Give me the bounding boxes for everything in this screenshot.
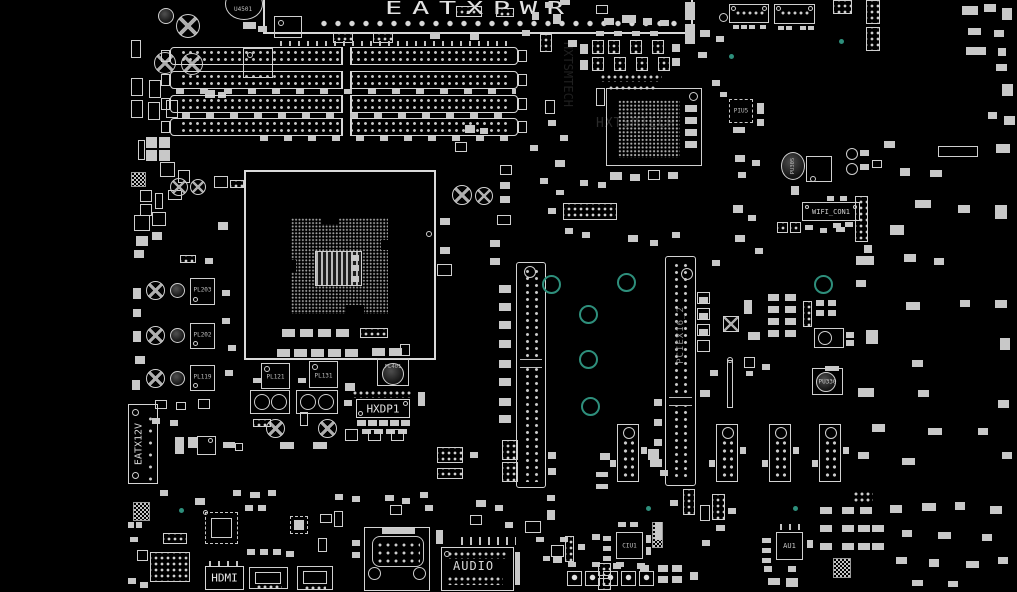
smd-component — [149, 80, 161, 98]
smd-pad — [768, 306, 779, 313]
smd-pad — [930, 170, 942, 177]
smd-component — [470, 515, 482, 525]
smd-component — [137, 550, 148, 561]
smd-component — [274, 16, 302, 38]
smd-pad — [702, 540, 710, 546]
smd-pad — [622, 15, 636, 23]
smd-pad — [603, 546, 611, 551]
electrolytic-capacitor — [190, 179, 206, 195]
smd-pad — [808, 26, 814, 30]
smd-pad — [136, 236, 148, 246]
smd-pad — [352, 540, 360, 546]
smd-pad — [955, 502, 965, 510]
smd-component — [455, 142, 467, 152]
usb-header-2[interactable] — [716, 424, 738, 482]
choke-pl121[interactable]: PL121 — [261, 363, 290, 389]
smd-pad — [556, 190, 564, 195]
dimm-slot-1[interactable] — [170, 47, 518, 65]
via-ring — [524, 266, 536, 278]
pin-header — [790, 222, 801, 233]
smd-pad — [800, 26, 806, 30]
choke-pl119[interactable]: PL119 — [190, 365, 215, 391]
smd-pad — [785, 330, 796, 337]
smd-component — [500, 165, 512, 175]
via-ring — [312, 364, 318, 370]
pcie-slot-2-label: PCIEX16_2 — [676, 306, 686, 364]
via-ring — [254, 394, 270, 410]
smd-pad — [749, 25, 755, 29]
smd-pad — [548, 208, 556, 214]
smd-component — [303, 571, 327, 584]
smd-pad — [159, 150, 170, 161]
smd-pad — [654, 399, 662, 406]
smd-pad — [311, 349, 324, 357]
smd-component — [700, 505, 710, 521]
smd-pad — [604, 18, 614, 25]
smd-pad — [860, 150, 869, 156]
smd-pad — [735, 235, 745, 242]
smd-pad — [890, 225, 904, 235]
via-ring — [271, 394, 287, 410]
smd-component — [300, 412, 308, 426]
smd-pad — [233, 490, 241, 496]
electrolytic-capacitor — [176, 14, 200, 38]
smd-pad — [640, 565, 649, 572]
pin-stub-row — [780, 524, 800, 530]
electrolytic-capacitor — [146, 326, 165, 345]
smd-component — [161, 74, 170, 86]
pl202-label: PL202 — [193, 331, 211, 338]
capacitor-row — [176, 89, 516, 94]
smd-pad — [748, 215, 756, 221]
chipset[interactable] — [606, 88, 702, 166]
smd-pad — [470, 452, 478, 458]
smd-pad — [672, 44, 680, 52]
smd-pad — [820, 228, 827, 233]
smd-pad — [988, 112, 997, 119]
smd-pad — [223, 442, 235, 448]
smd-pad — [733, 205, 743, 213]
smd-pad — [382, 528, 415, 534]
smd-pad — [402, 498, 410, 504]
vga-port[interactable] — [364, 527, 430, 591]
pin-header — [456, 6, 482, 17]
smd-pad — [768, 330, 779, 337]
capacitor-body — [170, 371, 185, 386]
smd-pad — [328, 349, 341, 357]
choke-pl131[interactable]: PL131 — [309, 361, 338, 388]
smd-pad — [864, 245, 872, 253]
smd-component — [697, 340, 710, 352]
smd-pad — [532, 12, 539, 20]
smd-pad — [618, 522, 626, 527]
smd-pad — [547, 495, 555, 501]
slot-key-notch — [341, 95, 352, 113]
smd-pad — [700, 30, 710, 37]
smd-pad — [968, 28, 981, 35]
smd-pad — [499, 340, 511, 348]
smd-pad — [978, 428, 988, 435]
smd-component — [518, 121, 527, 133]
smd-pad — [641, 447, 647, 454]
via-ring — [264, 366, 270, 372]
smd-pad — [385, 495, 394, 501]
cap-pl401[interactable]: PL401 — [377, 358, 409, 386]
capacitor-body — [170, 283, 185, 298]
smd-pad — [336, 329, 349, 337]
pin-header — [712, 494, 725, 520]
pin-header — [540, 34, 552, 52]
smd-component — [131, 40, 141, 58]
smd-pad — [842, 507, 854, 514]
smd-pad — [318, 329, 331, 337]
smd-component — [161, 50, 170, 62]
smd-component — [697, 292, 710, 304]
electrolytic-capacitor — [452, 185, 472, 205]
dimm-slot-4[interactable] — [170, 118, 518, 136]
via-ring — [805, 205, 809, 209]
smd-pad — [499, 303, 511, 311]
usb-header-3[interactable] — [769, 424, 791, 482]
smd-pad — [700, 390, 710, 397]
smd-pad — [984, 4, 996, 12]
pin-header — [866, 0, 880, 24]
wifi-con1-label: WIFI_CON1 — [812, 208, 850, 216]
pin-stub-row — [209, 561, 240, 566]
smd-pad — [345, 349, 358, 357]
eatx12v-connector[interactable]: EATX12V — [128, 404, 158, 484]
smd-pad — [351, 276, 359, 282]
smd-pad — [553, 14, 561, 24]
pin-header — [437, 468, 463, 479]
smd-pad — [752, 160, 760, 166]
smd-pad — [998, 400, 1009, 408]
pin-header — [502, 440, 518, 460]
smd-pad — [816, 300, 824, 306]
smd-pad — [658, 576, 668, 583]
smd-component — [697, 324, 710, 336]
smd-pad — [860, 507, 872, 514]
smd-pad — [785, 294, 796, 301]
smd-pad — [580, 60, 588, 70]
smd-pad — [401, 420, 410, 426]
smd-pad — [650, 31, 658, 36]
screw-hole — [413, 567, 426, 580]
smd-pad — [966, 561, 979, 568]
smd-pad — [499, 285, 511, 293]
smd-pad — [596, 484, 608, 489]
smd-pad — [578, 544, 585, 550]
smd-pad — [716, 36, 724, 42]
dimm-slot-3[interactable] — [170, 95, 518, 113]
smd-pad — [872, 525, 884, 532]
wifi-connector[interactable]: WIFI_CON1 — [802, 202, 860, 221]
smd-component — [176, 402, 186, 410]
socket-notch — [321, 216, 339, 224]
smd-pad — [643, 18, 652, 25]
via-ring — [358, 411, 363, 416]
dimm-slot-2[interactable] — [170, 71, 518, 89]
smd-pad — [298, 378, 306, 383]
smd-pad — [547, 510, 555, 520]
electrolytic-capacitor — [318, 419, 337, 438]
usb-header-1[interactable] — [617, 424, 639, 482]
smd-pad — [948, 581, 958, 587]
chip-piu5[interactable]: PIU5 — [729, 99, 753, 123]
smd-pad — [610, 172, 622, 180]
via-ring — [818, 331, 832, 345]
hxdp1-connector[interactable]: HXDP1 — [356, 399, 410, 418]
pin-header — [496, 8, 514, 17]
smd-pad — [580, 180, 588, 186]
fiducial-marker — [131, 172, 146, 187]
smd-pad — [654, 419, 662, 426]
smd-pad — [133, 309, 141, 317]
pin-header — [163, 533, 187, 544]
smd-pad — [335, 494, 343, 500]
fiducial-marker — [833, 558, 851, 578]
via-ring — [846, 148, 858, 160]
smd-pad — [768, 318, 779, 325]
smd-component — [320, 514, 332, 523]
smd-pad — [440, 247, 450, 254]
smd-pad — [205, 258, 213, 264]
polarity-box — [723, 316, 739, 332]
via-ring — [193, 383, 198, 388]
smd-pad — [425, 505, 433, 511]
electrolytic-capacitor — [146, 281, 165, 300]
socket-notch — [381, 240, 389, 250]
smd-pad — [654, 439, 662, 446]
smd-component — [214, 176, 228, 188]
capacitor-body — [158, 8, 174, 24]
smd-pad — [670, 500, 678, 506]
smd-pad — [247, 549, 255, 555]
pin-header — [614, 57, 626, 71]
smd-component — [497, 215, 511, 225]
smd-component — [938, 146, 978, 157]
smd-pad — [668, 172, 678, 179]
socket-notch — [346, 305, 364, 314]
smd-pad — [860, 164, 869, 170]
pl401-label: PL401 — [385, 364, 402, 370]
smd-pad — [728, 508, 736, 514]
smd-component — [727, 360, 733, 408]
smd-pad — [672, 565, 682, 572]
smd-pad — [672, 232, 680, 238]
smd-component — [648, 170, 660, 180]
smd-pad — [553, 557, 562, 563]
mounting-hole — [542, 275, 561, 294]
smd-pad — [476, 500, 486, 507]
pin-field — [256, 584, 282, 589]
smd-pad — [858, 525, 870, 532]
smd-pad — [929, 559, 939, 567]
pin-header — [180, 255, 196, 263]
smd-pad — [548, 120, 556, 126]
hdmi-label: HDMI — [211, 572, 238, 585]
via-ring — [719, 13, 728, 22]
usb-header-4[interactable] — [819, 424, 841, 482]
smd-pad — [998, 557, 1008, 564]
smd-component — [138, 140, 145, 160]
pu305-label: PU305 — [790, 158, 796, 175]
chip-au1[interactable]: AU1 — [776, 532, 803, 560]
smd-pad — [160, 490, 168, 496]
test-point — [839, 39, 844, 44]
smd-pad — [603, 536, 611, 541]
audio-jack — [639, 571, 654, 586]
pin-stub-row — [280, 41, 510, 46]
smd-pad — [827, 196, 834, 201]
pin-header — [652, 40, 664, 54]
smd-pad — [912, 580, 923, 586]
smd-pad — [133, 288, 141, 299]
slot-key-notch — [341, 71, 352, 89]
smd-pad — [300, 329, 313, 337]
smd-pad — [495, 505, 503, 511]
smd-component — [525, 521, 541, 533]
via-ring — [403, 401, 408, 406]
pin-stub-row — [461, 537, 516, 545]
audio-jack — [567, 571, 582, 586]
smd-pad — [690, 572, 698, 580]
smd-pad — [846, 332, 854, 338]
pl131-label: PL131 — [314, 372, 332, 379]
choke-pl203[interactable]: PL203 — [190, 278, 215, 305]
pin-header — [437, 447, 463, 463]
smd-pad — [218, 222, 228, 230]
pin-header — [608, 40, 620, 54]
smd-pad — [630, 174, 640, 181]
smd-pad — [540, 178, 548, 184]
smd-pad — [630, 522, 638, 527]
smd-pad — [596, 31, 604, 36]
smd-pad — [603, 556, 611, 561]
smd-pad — [995, 205, 1007, 219]
smd-component — [334, 511, 343, 527]
hdmi-port[interactable]: HDMI — [205, 566, 244, 590]
via-ring — [623, 427, 635, 439]
smd-pad — [762, 558, 771, 563]
pcie-slot-1[interactable] — [516, 262, 546, 488]
smd-pad — [906, 302, 920, 310]
test-point — [729, 54, 734, 59]
pin-header — [253, 419, 271, 427]
smd-pad — [280, 442, 294, 449]
via-ring — [300, 394, 316, 410]
smd-pad — [628, 235, 638, 242]
pin-header — [866, 27, 880, 51]
smd-pad — [820, 507, 832, 514]
smd-pad — [646, 547, 651, 555]
smd-pad — [128, 578, 136, 584]
hxdp1-label: HXDP1 — [366, 402, 399, 415]
smd-component — [518, 74, 527, 86]
capacitor-row — [764, 566, 804, 572]
pu330-label: PU330 — [818, 378, 836, 385]
smd-component — [345, 429, 358, 441]
smd-pad — [505, 522, 513, 528]
chip-ciu1[interactable]: CIU1 — [616, 532, 643, 559]
smd-pad — [655, 522, 662, 540]
smd-pad — [188, 437, 197, 448]
smd-pad — [650, 240, 658, 246]
eatx12v-label: EATX12V — [133, 423, 144, 465]
smd-pad — [733, 127, 745, 133]
slot-key-notch — [520, 359, 542, 368]
smd-pad — [843, 447, 849, 454]
smd-pad — [762, 548, 771, 553]
pcb-boardview-canvas[interactable]: EATXPWR U4501 HXTSMTECH HXTSMTECH — [0, 0, 1017, 592]
smd-pad — [996, 64, 1007, 71]
smd-pad — [735, 155, 745, 162]
via-ring — [278, 20, 284, 26]
smd-pad — [440, 218, 450, 225]
pin-field — [774, 439, 786, 478]
smd-pad — [762, 364, 770, 370]
pin-header — [636, 57, 648, 71]
pin-field — [447, 551, 507, 559]
pin-header — [150, 552, 190, 582]
cap-pu330[interactable]: PU330 — [812, 368, 843, 395]
smd-pad — [195, 498, 205, 505]
pin-header — [833, 0, 852, 14]
pin-header — [598, 578, 611, 590]
smd-pad — [890, 505, 902, 513]
smd-pad — [660, 470, 668, 476]
smd-pad — [833, 223, 841, 228]
smd-component — [551, 545, 564, 557]
smd-pad — [994, 30, 1004, 37]
smd-pad — [560, 0, 570, 5]
smd-pad — [785, 318, 796, 325]
pcie-slot-2[interactable]: PCIEX16_2 — [665, 256, 696, 486]
smd-pad — [258, 26, 267, 32]
smd-pad — [900, 168, 910, 176]
smd-pad — [632, 31, 640, 36]
smd-pad — [960, 300, 970, 307]
smd-pad — [277, 349, 290, 357]
u4501-cap[interactable]: U4501 — [225, 0, 263, 20]
smd-pad — [733, 25, 739, 29]
via-ring — [810, 176, 816, 182]
smd-pad — [135, 356, 145, 364]
smd-pad — [152, 232, 162, 240]
test-point — [179, 508, 184, 513]
audio-label: AUDIO — [453, 559, 494, 573]
cap-pu305[interactable]: PU305 — [781, 152, 805, 180]
smd-pad — [938, 532, 951, 539]
smd-pad — [548, 468, 556, 475]
smd-pad — [746, 371, 753, 376]
smd-pad — [530, 145, 538, 151]
chipset-ball-grid — [618, 100, 680, 158]
smd-pad — [136, 522, 142, 528]
via-ring — [689, 92, 698, 101]
smd-pad — [712, 260, 720, 266]
smd-pad — [1000, 338, 1010, 350]
smd-pad — [998, 48, 1006, 56]
smd-pad — [253, 378, 261, 383]
smd-pad — [828, 310, 836, 316]
smd-pad — [658, 565, 668, 572]
smd-component — [131, 78, 143, 96]
smd-pad — [762, 460, 768, 467]
smd-pad — [500, 182, 510, 189]
choke-pl202[interactable]: PL202 — [190, 323, 215, 349]
smd-component — [198, 399, 210, 409]
